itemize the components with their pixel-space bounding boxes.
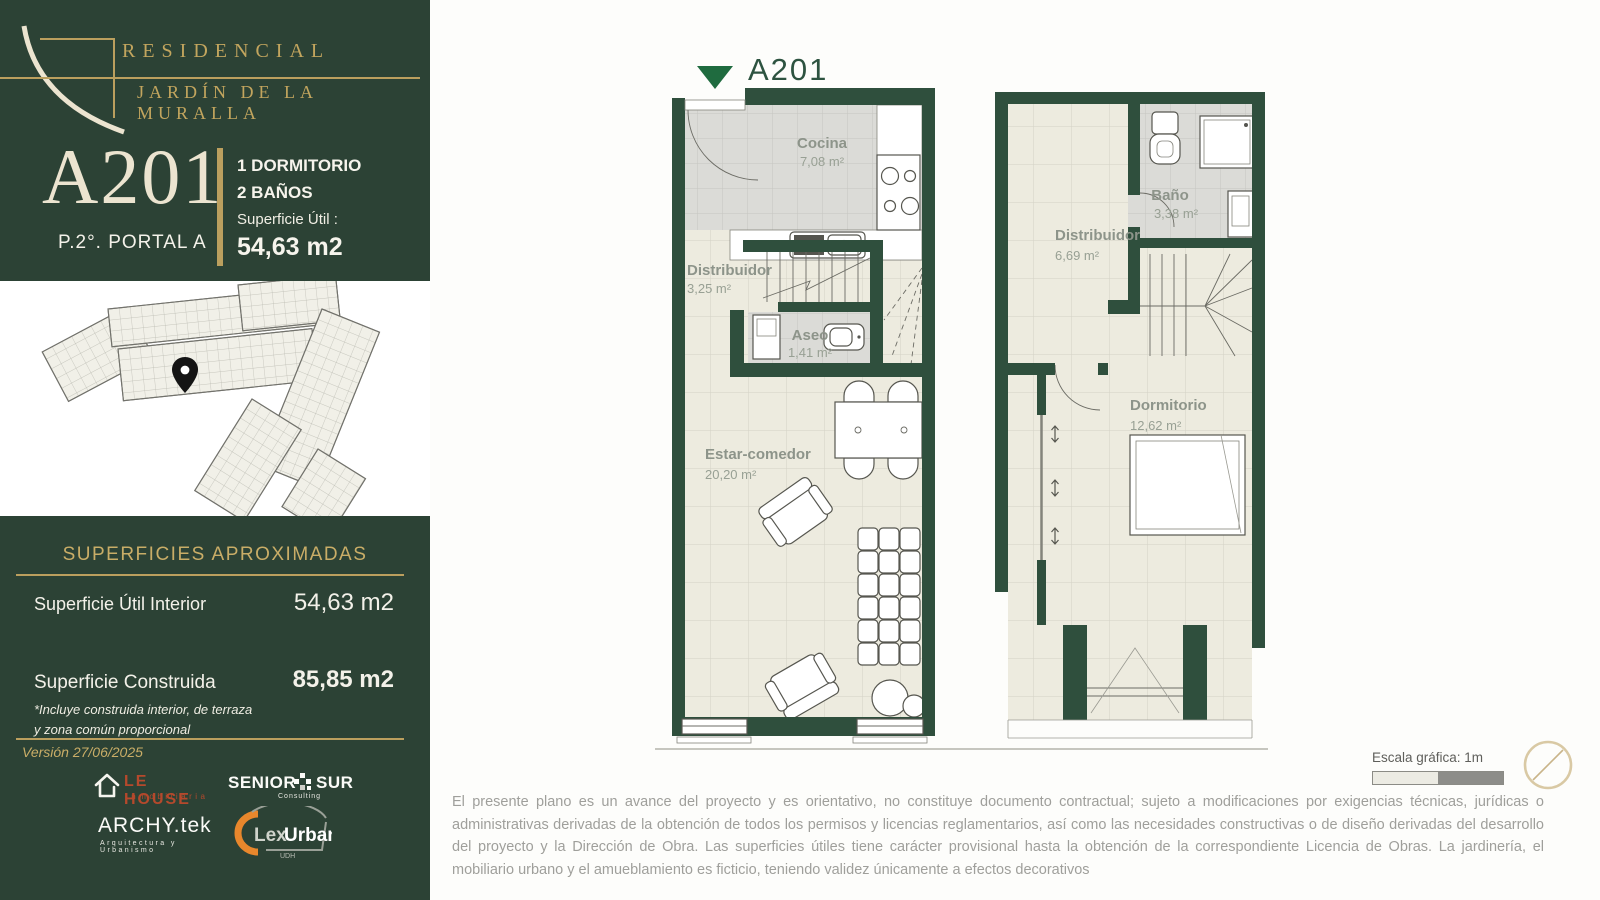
useful-interior-label: Superficie Útil Interior	[34, 594, 206, 615]
scale-bar-dark	[1438, 772, 1503, 784]
entrance-marker-icon	[697, 66, 733, 89]
gold-divider	[0, 77, 420, 79]
useful-area-label: Superficie Útil :	[237, 211, 338, 228]
room-label-aseo: Aseo	[792, 327, 829, 344]
useful-area-value: 54,63 m2	[237, 233, 343, 262]
lexurban-mark-icon: Lex Urban UDH	[232, 806, 332, 862]
gold-rule-2	[16, 738, 404, 740]
unit-floor-portal: P.2°. PORTAL A	[58, 232, 207, 254]
version-date: Versión 27/06/2025	[22, 744, 143, 760]
unit-bedrooms: 1 DORMITORIO	[237, 156, 361, 176]
unit-baths: 2 BAÑOS	[237, 183, 313, 203]
built-area-value: 85,85 m2	[293, 666, 394, 694]
compass-icon	[1521, 738, 1575, 792]
room-area-bano: 3,38 m²	[1154, 206, 1199, 221]
scale-bar	[1372, 771, 1504, 785]
plan-unit-label: A201	[748, 52, 828, 88]
room-area-cocina: 7,08 m²	[800, 154, 845, 169]
room-label-distribuidor2: Distribuidor	[1055, 227, 1140, 244]
legal-disclaimer: El presente plano es un avance del proye…	[452, 791, 1544, 881]
logo-lehouse: LE HOUSE inmobiliaria	[92, 771, 217, 805]
logo-lexurban: Lex Urban UDH	[232, 806, 332, 862]
svg-text:UDH: UDH	[280, 853, 295, 860]
room-label-distribuidor1: Distribuidor	[687, 262, 772, 279]
svg-text:Urban: Urban	[284, 825, 332, 846]
room-label-dormitorio: Dormitorio	[1130, 397, 1207, 414]
brand-logo-icon	[6, 6, 156, 146]
logo-archytek: ARCHY.tek Arquitectura y Urbanismo	[98, 814, 218, 850]
room-area-distribuidor2: 6,69 m²	[1055, 248, 1100, 263]
floorplan-level1: Cocina 7,08 m² Distribuidor 3,25 m² Aseo…	[672, 88, 935, 748]
room-area-estar: 20,20 m²	[705, 467, 757, 482]
gold-rule	[16, 574, 404, 576]
room-area-distribuidor1: 3,25 m²	[687, 281, 732, 296]
built-area-footnote: *Incluye construida interior, de terraza…	[34, 700, 252, 740]
surfaces-panel: SUPERFICIES APROXIMADAS Superficie Útil …	[0, 516, 430, 900]
floorplan-level2: Baño 3,38 m² Distribuidor 6,69 m² Dormit…	[995, 88, 1265, 748]
room-area-aseo: 1,41 m²	[788, 345, 833, 360]
room-area-dormitorio: 12,62 m²	[1130, 418, 1182, 433]
scale-bar-light	[1373, 772, 1438, 784]
brand-name-line1: RESIDENCIAL	[122, 40, 330, 63]
house-icon	[92, 771, 122, 801]
room-label-cocina: Cocina	[797, 135, 848, 152]
svg-text:Lex: Lex	[254, 825, 287, 846]
unit-code: A201	[42, 138, 223, 216]
sofa	[858, 528, 920, 665]
side-table	[872, 680, 908, 716]
surfaces-title: SUPERFICIES APROXIMADAS	[0, 544, 430, 566]
pixel-cluster-icon	[294, 773, 312, 792]
gold-separator	[217, 148, 223, 266]
logo-senior-sur: SENIOR SUR Consulting	[228, 773, 343, 803]
scale-label: Escala gráfica: 1m	[1372, 750, 1483, 765]
site-plan-minimap	[0, 281, 430, 516]
site-plan-drawing	[0, 281, 430, 516]
room-label-estar: Estar-comedor	[705, 446, 811, 463]
brand-panel: RESIDENCIAL JARDÍN DE LA MURALLA A201 P.…	[0, 0, 430, 281]
bed	[1130, 435, 1245, 535]
side-table-small	[903, 695, 925, 717]
brand-name-line2: JARDÍN DE LA MURALLA	[137, 82, 430, 124]
built-area-label: Superficie Construida	[34, 672, 216, 694]
floorplan-sheet: RESIDENCIAL JARDÍN DE LA MURALLA A201 P.…	[0, 0, 1600, 900]
useful-interior-value: 54,63 m2	[294, 589, 394, 617]
room-label-bano: Baño	[1151, 187, 1189, 204]
ground-line	[655, 748, 1268, 750]
